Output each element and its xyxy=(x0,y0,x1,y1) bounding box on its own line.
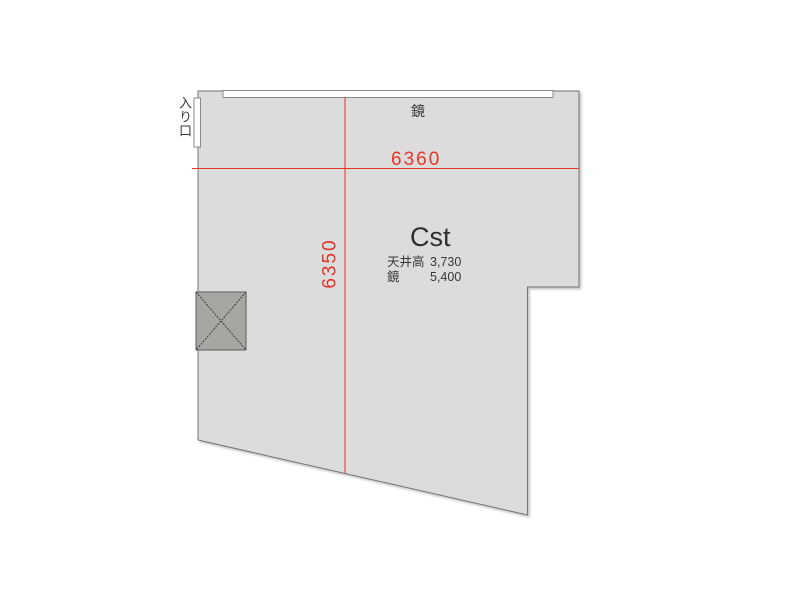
height-dimension-label: 6350 xyxy=(321,235,340,293)
floorplan-canvas: 入り口 鏡 6360 6350 Cst 天井高 3,730 鏡 5,400 xyxy=(0,0,800,600)
floorplan-drawing xyxy=(0,0,800,600)
spec-value-mirror-width: 5,400 xyxy=(430,270,461,285)
spec-label-mirror-width: 鏡 xyxy=(387,270,430,285)
entrance-label: 入り口 xyxy=(177,96,191,138)
studio-specs: 天井高 3,730 鏡 5,400 xyxy=(387,255,461,285)
mirror-strip xyxy=(223,91,553,98)
mirror-label: 鏡 xyxy=(411,101,425,121)
spec-row-mirror: 鏡 5,400 xyxy=(387,270,461,285)
width-dimension-label: 6360 xyxy=(391,149,441,171)
studio-name: Cst xyxy=(410,222,451,253)
entrance-opening xyxy=(194,98,201,147)
spec-row-ceiling: 天井高 3,730 xyxy=(387,255,461,270)
pillar-marker xyxy=(196,292,246,350)
spec-value-ceiling-height: 3,730 xyxy=(430,255,461,270)
room-outline xyxy=(198,91,579,515)
spec-label-ceiling-height: 天井高 xyxy=(387,255,430,270)
